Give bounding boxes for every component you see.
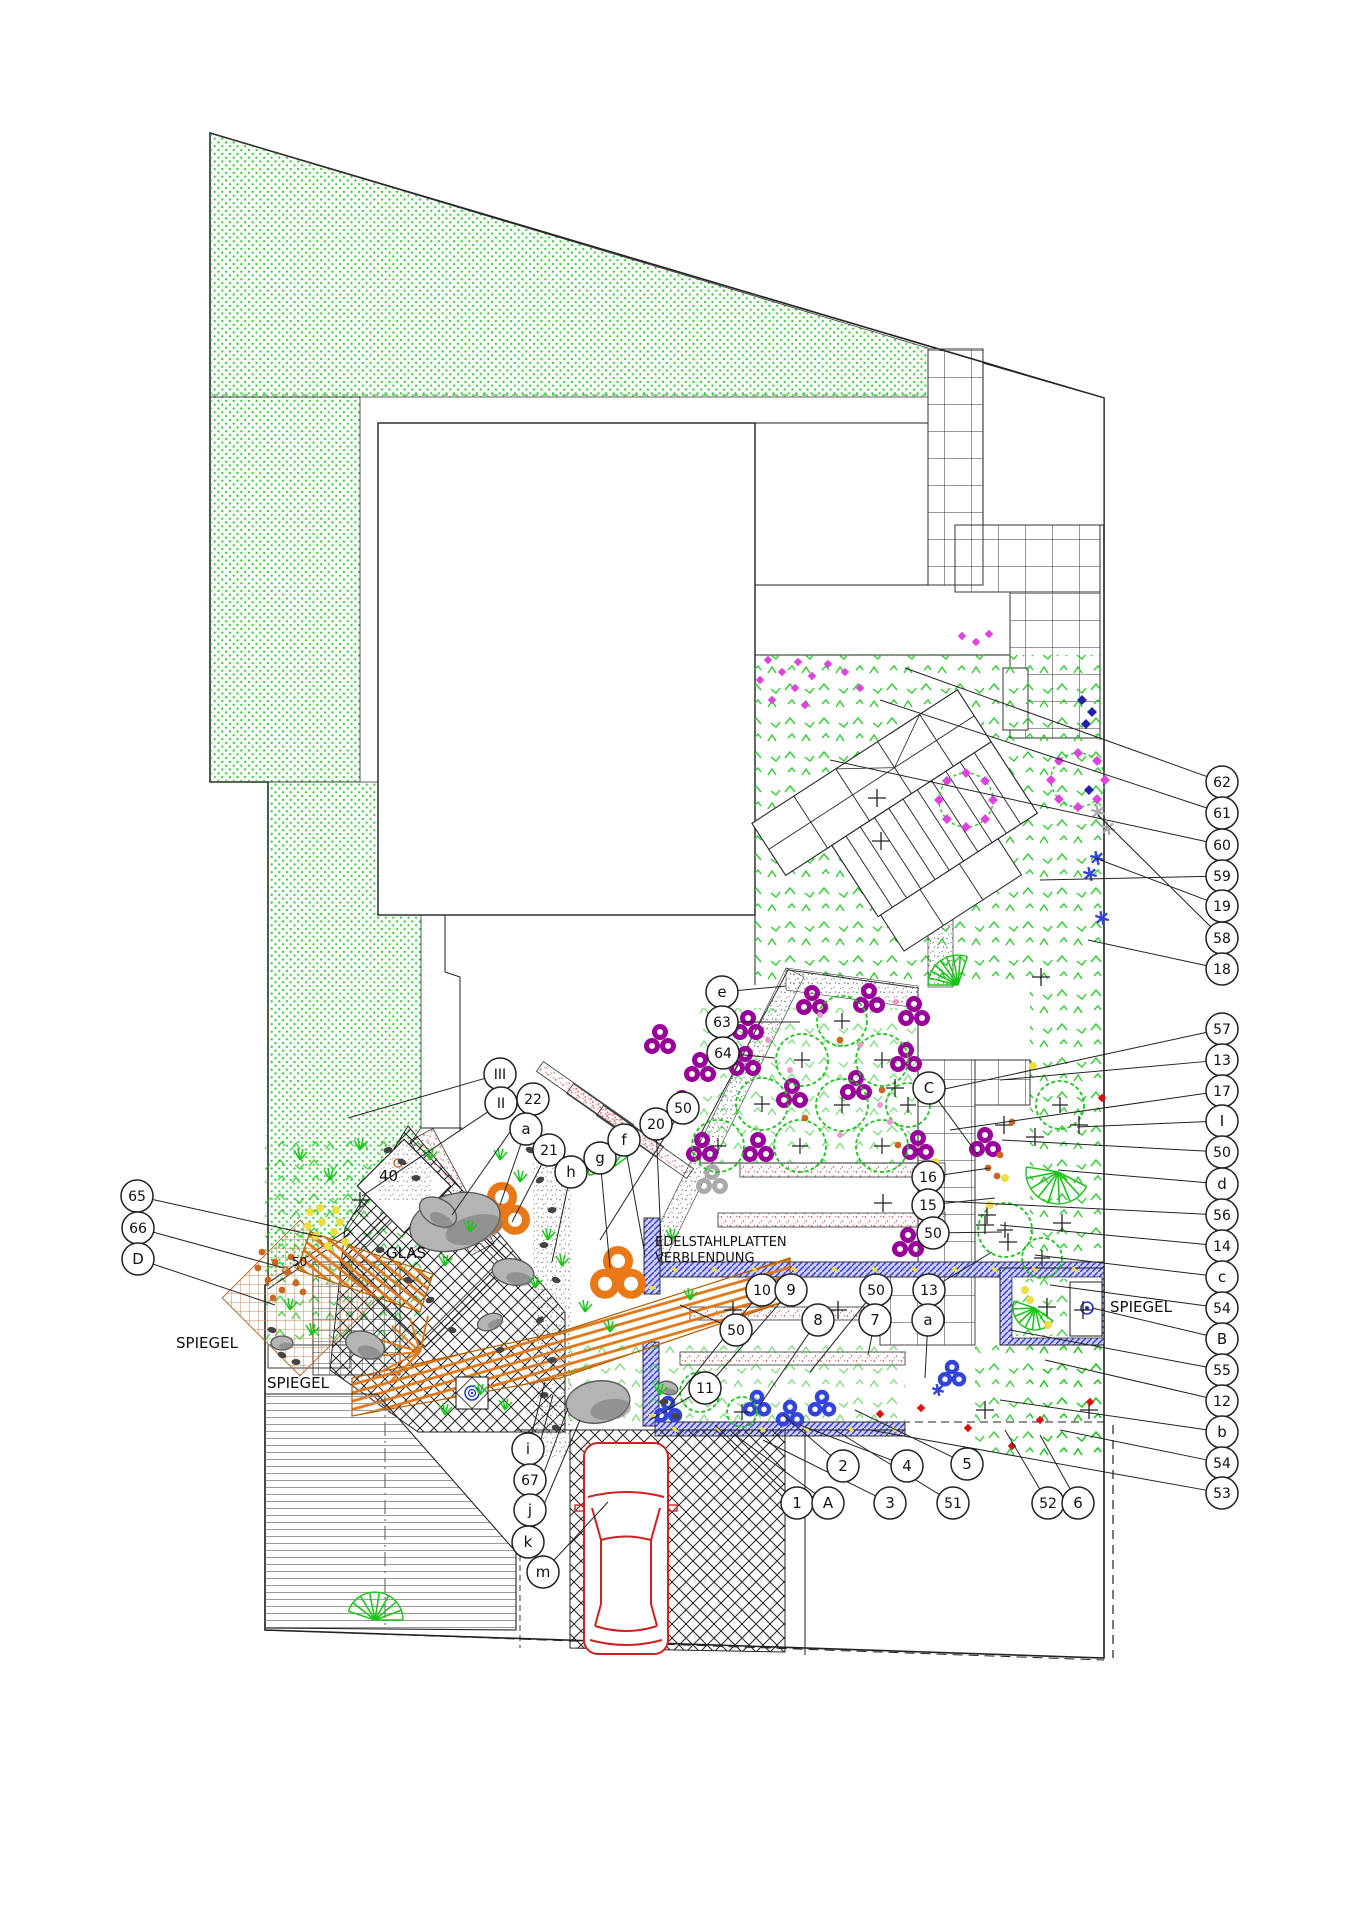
- callout-14-14: 14: [1206, 1230, 1238, 1262]
- callout-8-47: 8: [802, 1304, 834, 1336]
- label-spiegel-right: SPIEGEL: [1110, 1298, 1173, 1316]
- svg-text:f: f: [621, 1131, 627, 1149]
- svg-text:B: B: [1217, 1330, 1227, 1348]
- svg-text:50: 50: [924, 1226, 942, 1242]
- callout-50-50: 50: [720, 1314, 752, 1346]
- callout-III-26: III: [484, 1058, 516, 1090]
- callout-h-31: h: [555, 1156, 587, 1188]
- svg-text:15: 15: [919, 1198, 937, 1214]
- callout-6-60: 6: [1062, 1487, 1094, 1519]
- svg-text:63: 63: [713, 1015, 731, 1031]
- callout-B-17: B: [1206, 1323, 1238, 1355]
- svg-text:7: 7: [870, 1311, 880, 1329]
- callout-59-3: 59: [1206, 860, 1238, 892]
- callout-1-52: 1: [781, 1487, 813, 1519]
- svg-text:22: 22: [524, 1092, 542, 1108]
- svg-text:II: II: [497, 1096, 505, 1112]
- label-cladding-1: EDELSTAHLPLATTEN: [655, 1235, 787, 1250]
- callout-50-42: 50: [917, 1217, 949, 1249]
- neighbor-plot: [983, 363, 1104, 525]
- callout-f-33: f: [608, 1124, 640, 1156]
- svg-text:50: 50: [867, 1283, 885, 1299]
- svg-text:65: 65: [128, 1189, 146, 1205]
- svg-text:9: 9: [786, 1281, 796, 1299]
- callout-10-44: 10: [746, 1274, 778, 1306]
- callout-55-18: 55: [1206, 1354, 1238, 1386]
- callout-22-28: 22: [517, 1083, 549, 1115]
- label-40: 40: [379, 1167, 398, 1185]
- svg-text:6: 6: [1073, 1494, 1083, 1512]
- svg-text:50: 50: [1213, 1145, 1231, 1161]
- svg-text:50: 50: [727, 1323, 745, 1339]
- callout-56-13: 56: [1206, 1199, 1238, 1231]
- svg-text:13: 13: [1213, 1053, 1231, 1069]
- callout-j-63: j: [514, 1494, 546, 1526]
- callout-11-51: 11: [689, 1372, 721, 1404]
- svg-text:12: 12: [1213, 1394, 1231, 1410]
- svg-text:59: 59: [1213, 869, 1231, 885]
- callout-54-16: 54: [1206, 1292, 1238, 1324]
- callout-62-0: 62: [1206, 766, 1238, 798]
- callout-67-62: 67: [514, 1464, 546, 1496]
- garden-plan-drawing: 62616059195818571317I50d5614c54B5512b545…: [0, 0, 1367, 1920]
- svg-text:66: 66: [129, 1221, 147, 1237]
- label-cladding-2: VERBLENDUNG: [655, 1251, 755, 1266]
- callout-7-48: 7: [859, 1304, 891, 1336]
- svg-text:3: 3: [885, 1494, 895, 1512]
- svg-text:14: 14: [1213, 1239, 1231, 1255]
- svg-text:a: a: [923, 1311, 932, 1329]
- callout-9-45: 9: [775, 1274, 807, 1306]
- svg-text:13: 13: [920, 1283, 938, 1299]
- svg-text:e: e: [717, 983, 726, 1001]
- svg-text:A: A: [823, 1494, 834, 1512]
- callout-a-49: a: [912, 1304, 944, 1336]
- svg-text:11: 11: [696, 1381, 714, 1397]
- svg-text:i: i: [526, 1440, 530, 1458]
- svg-text:8: 8: [813, 1311, 823, 1329]
- svg-text:m: m: [536, 1563, 551, 1581]
- svg-text:62: 62: [1213, 775, 1231, 791]
- callout-66-24: 66: [122, 1212, 154, 1244]
- callout-13-43: 13: [913, 1274, 945, 1306]
- callout-c-15: c: [1206, 1261, 1238, 1293]
- svg-text:54: 54: [1213, 1301, 1231, 1317]
- callout-61-1: 61: [1206, 797, 1238, 829]
- callout-12-19: 12: [1206, 1385, 1238, 1417]
- svg-text:50: 50: [674, 1101, 692, 1117]
- svg-text:c: c: [1218, 1268, 1226, 1286]
- svg-text:5: 5: [962, 1455, 972, 1473]
- callout-19-4: 19: [1206, 890, 1238, 922]
- callout-50-11: 50: [1206, 1136, 1238, 1168]
- svg-text:19: 19: [1213, 899, 1231, 915]
- callout-I-10: I: [1206, 1105, 1238, 1137]
- svg-text:4: 4: [902, 1457, 912, 1475]
- callout-d-12: d: [1206, 1168, 1238, 1200]
- callout-A-53: A: [812, 1487, 844, 1519]
- svg-text:57: 57: [1213, 1022, 1231, 1038]
- svg-text:67: 67: [521, 1473, 539, 1489]
- svg-text:1: 1: [792, 1494, 802, 1512]
- callout-60-2: 60: [1206, 829, 1238, 861]
- callout-m-65: m: [527, 1556, 559, 1588]
- svg-text:53: 53: [1213, 1486, 1231, 1502]
- callout-b-20: b: [1206, 1416, 1238, 1448]
- callout-D-25: D: [122, 1243, 154, 1275]
- callout-k-64: k: [512, 1526, 544, 1558]
- svg-text:58: 58: [1213, 931, 1231, 947]
- svg-text:C: C: [924, 1079, 934, 1097]
- callout-57-7: 57: [1206, 1013, 1238, 1045]
- callout-54-21: 54: [1206, 1447, 1238, 1479]
- callout-2-55: 2: [827, 1450, 859, 1482]
- callout-50-46: 50: [860, 1274, 892, 1306]
- svg-text:j: j: [527, 1501, 532, 1519]
- callout-17-9: 17: [1206, 1075, 1238, 1107]
- callout-13-8: 13: [1206, 1044, 1238, 1076]
- svg-text:56: 56: [1213, 1208, 1231, 1224]
- garden-plan-page: 62616059195818571317I50d5614c54B5512b545…: [0, 0, 1367, 1920]
- callout-58-5: 58: [1206, 922, 1238, 954]
- svg-text:2: 2: [838, 1457, 848, 1475]
- fountain: [456, 1377, 488, 1409]
- svg-text:55: 55: [1213, 1363, 1231, 1379]
- callout-i-61: i: [512, 1433, 544, 1465]
- callout-53-22: 53: [1206, 1477, 1238, 1509]
- callout-3-54: 3: [874, 1487, 906, 1519]
- svg-text:16: 16: [919, 1170, 937, 1186]
- svg-text:52: 52: [1039, 1496, 1057, 1512]
- svg-text:20: 20: [647, 1117, 665, 1133]
- svg-text:h: h: [566, 1163, 576, 1181]
- svg-text:D: D: [132, 1250, 144, 1268]
- callout-5-58: 5: [951, 1448, 983, 1480]
- callout-50-35: 50: [667, 1092, 699, 1124]
- car: [575, 1443, 677, 1654]
- svg-text:III: III: [494, 1067, 506, 1083]
- svg-text:a: a: [521, 1120, 530, 1138]
- svg-text:d: d: [1217, 1175, 1227, 1193]
- svg-text:b: b: [1217, 1423, 1227, 1441]
- callout-16-40: 16: [912, 1161, 944, 1193]
- svg-text:60: 60: [1213, 838, 1231, 854]
- callout-51-57: 51: [937, 1487, 969, 1519]
- svg-text:g: g: [595, 1149, 605, 1167]
- callout-C-39: C: [913, 1072, 945, 1104]
- svg-text:10: 10: [753, 1283, 771, 1299]
- callout-52-59: 52: [1032, 1487, 1064, 1519]
- callout-e-36: e: [706, 976, 738, 1008]
- label-spiegel-left-upper: SPIEGEL: [176, 1334, 239, 1352]
- callout-64-38: 64: [707, 1037, 739, 1069]
- svg-text:51: 51: [944, 1496, 962, 1512]
- svg-text:17: 17: [1213, 1084, 1231, 1100]
- callout-15-41: 15: [912, 1189, 944, 1221]
- callout-63-37: 63: [706, 1006, 738, 1038]
- svg-text:k: k: [524, 1533, 533, 1551]
- callout-18-6: 18: [1206, 953, 1238, 985]
- callout-65-23: 65: [121, 1180, 153, 1212]
- label-glas: GLAS: [386, 1244, 426, 1262]
- label-50-plant: 50: [292, 1255, 307, 1269]
- label-spiegel-left-lower: SPIEGEL: [267, 1374, 330, 1392]
- svg-text:I: I: [1220, 1112, 1224, 1130]
- svg-text:18: 18: [1213, 962, 1231, 978]
- svg-text:61: 61: [1213, 806, 1231, 822]
- svg-text:54: 54: [1213, 1456, 1231, 1472]
- svg-text:21: 21: [540, 1143, 558, 1159]
- svg-text:64: 64: [714, 1046, 732, 1062]
- callout-4-56: 4: [891, 1450, 923, 1482]
- callout-II-27: II: [485, 1087, 517, 1119]
